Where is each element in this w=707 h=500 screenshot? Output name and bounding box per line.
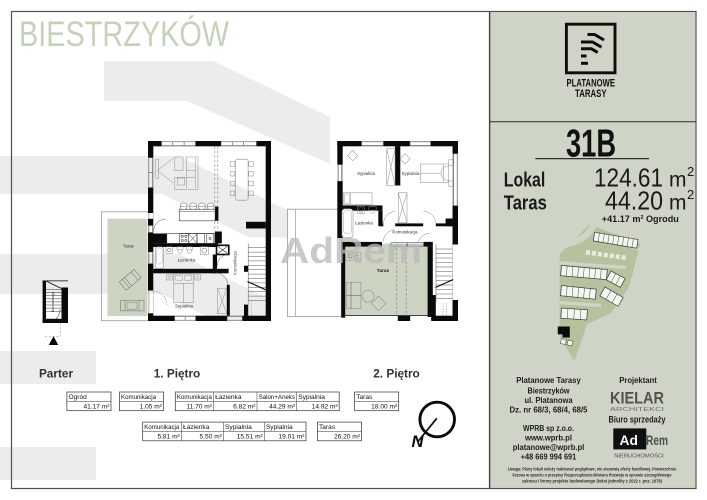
svg-text:Sypialnia: Sypialnia	[175, 304, 193, 309]
svg-text:Biuro sprzedaży: Biuro sprzedaży	[609, 415, 666, 425]
svg-text:NIERUCHOMOŚCI: NIERUCHOMOŚCI	[614, 452, 664, 460]
svg-text:Parter: Parter	[39, 367, 74, 381]
svg-text:5.81 m²: 5.81 m²	[157, 434, 180, 441]
svg-text:Taras: Taras	[319, 424, 336, 431]
svg-text:1.05 m²: 1.05 m²	[140, 404, 163, 411]
svg-text:18.00 m²: 18.00 m²	[371, 404, 398, 411]
svg-text:44.29 m²: 44.29 m²	[269, 404, 296, 411]
svg-text:zakresu i formy projektu budow: zakresu i formy projektu budowlanego (te…	[522, 478, 662, 483]
svg-text:Uwaga: Plany lokali należy tra: Uwaga: Plany lokali należy traktować pog…	[508, 466, 676, 471]
svg-text:26.20 m²: 26.20 m²	[334, 434, 361, 441]
svg-text:TARASY: TARASY	[575, 88, 607, 100]
svg-text:Komunikacja: Komunikacja	[121, 394, 156, 401]
svg-text:5.50 m²: 5.50 m²	[200, 434, 223, 441]
svg-text:Platanowe Tarasy: Platanowe Tarasy	[516, 375, 581, 385]
svg-text:15.51 m²: 15.51 m²	[237, 434, 264, 441]
svg-text:6.82 m²: 6.82 m²	[233, 404, 256, 411]
svg-text:BIESTRZYKÓW: BIESTRZYKÓW	[19, 15, 229, 54]
svg-text:Ad: Ad	[620, 433, 638, 448]
svg-text:Komunikacja: Komunikacja	[233, 251, 238, 275]
svg-text:Projektant: Projektant	[619, 375, 657, 385]
svg-text:Lokal: Lokal	[504, 169, 546, 192]
svg-text:Komunikacja: Komunikacja	[177, 394, 212, 401]
svg-text:Łazienka: Łazienka	[215, 394, 242, 401]
svg-text:Sypialnia: Sypialnia	[225, 424, 252, 431]
svg-text:1. Piętro: 1. Piętro	[154, 367, 201, 381]
svg-text:Sypialnia: Sypialnia	[357, 171, 375, 176]
svg-text:Taras: Taras	[356, 394, 373, 401]
svg-text:www.wprb.pl: www.wprb.pl	[524, 433, 572, 443]
svg-text:Taras: Taras	[504, 192, 547, 215]
svg-text:liczona w oparciu o przepisy R: liczona w oparciu o przepisy Rozporządze…	[513, 472, 672, 477]
svg-text:Sypialnia: Sypialnia	[298, 394, 325, 401]
svg-text:AdRem: AdRem	[280, 230, 422, 271]
svg-text:Taras: Taras	[123, 243, 135, 248]
svg-text:41.17 m²: 41.17 m²	[83, 404, 110, 411]
svg-text:N: N	[412, 433, 425, 451]
svg-text:WPRB sp z.o.o.: WPRB sp z.o.o.	[523, 423, 574, 433]
svg-text:19.01 m²: 19.01 m²	[278, 434, 305, 441]
svg-text:Łazienka: Łazienka	[178, 257, 196, 262]
svg-text:m: m	[669, 192, 687, 215]
svg-text:44.20: 44.20	[605, 188, 663, 216]
svg-text:Salon+Aneks: Salon+Aneks	[259, 394, 296, 401]
svg-text:+48 669 994 691: +48 669 994 691	[521, 452, 577, 462]
svg-text:Sypialnia: Sypialnia	[402, 171, 420, 176]
svg-text:Łazienka: Łazienka	[183, 424, 210, 431]
svg-text:11.70 m²: 11.70 m²	[186, 404, 212, 411]
svg-text:2: 2	[687, 187, 694, 202]
svg-text:Ogród: Ogród	[69, 394, 88, 401]
svg-text:m: m	[669, 169, 687, 192]
svg-text:ARCHITEKCI: ARCHITEKCI	[610, 407, 664, 413]
svg-text:Łazienka: Łazienka	[355, 220, 373, 225]
svg-text:2. Piętro: 2. Piętro	[373, 367, 420, 381]
svg-text:platanowe@wprb.pl: platanowe@wprb.pl	[513, 442, 585, 452]
svg-text:Biestrzyków: Biestrzyków	[528, 385, 570, 395]
svg-text:Komunikacja: Komunikacja	[51, 292, 55, 313]
svg-text:Rem: Rem	[646, 433, 668, 448]
svg-text:Sypialnia: Sypialnia	[266, 424, 293, 431]
svg-text:+41.17 m² Ogrodu: +41.17 m² Ogrodu	[602, 214, 679, 225]
svg-text:KIELAR: KIELAR	[610, 390, 664, 408]
svg-text:2: 2	[687, 164, 694, 179]
svg-text:14.92 m²: 14.92 m²	[312, 404, 339, 411]
svg-text:Dz. nr 68/3, 68/4, 68/5: Dz. nr 68/3, 68/4, 68/5	[510, 404, 588, 414]
svg-text:Komunikacja: Komunikacja	[144, 424, 179, 431]
